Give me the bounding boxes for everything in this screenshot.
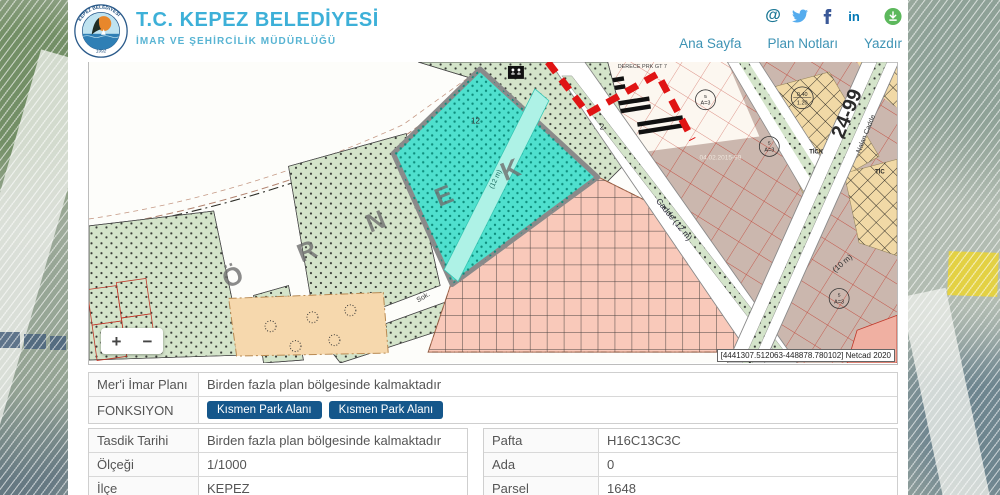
linkedin-icon[interactable]: in [845,7,863,25]
page-title: T.C. KEPEZ BELEDİYESİ [136,9,379,32]
nav-home[interactable]: Ana Sayfa [679,36,741,51]
header: KEPEZ BELEDİYESİ 1992 T.C. KEPEZ BELEDİY… [68,0,908,62]
main-nav: Ana Sayfa Plan Notları Yazdır [679,36,902,51]
svg-text:TİCK: TİCK [809,148,824,155]
svg-text:5: 5 [704,94,707,100]
parcel-detail-table-right: Pafta H16C13C3C Ada 0 Parsel 1648 [483,428,898,495]
svg-text:A=3: A=3 [764,147,774,153]
title-block: T.C. KEPEZ BELEDİYESİ İMAR VE ŞEHİRCİLİK… [136,9,379,47]
table-row: Mer'i İmar Planı Birden fazla plan bölge… [89,373,897,397]
row-value: Birden fazla plan bölgesinde kalmaktadır [199,429,467,452]
background-building [50,336,66,350]
map-zoom-control: + − [101,328,163,354]
page-subtitle: İMAR VE ŞEHİRCİLİK MÜDÜRLÜĞÜ [136,36,379,47]
content-panel: KEPEZ BELEDİYESİ 1992 T.C. KEPEZ BELEDİY… [68,0,908,495]
playground-icon [508,66,524,79]
table-row: Ölçeği 1/1000 [89,453,467,477]
svg-text:12: 12 [471,117,480,126]
zoom-out-button[interactable]: − [137,333,159,350]
svg-text:5: 5 [768,140,771,146]
row-label: FONKSIYON [89,397,199,423]
municipality-logo[interactable]: KEPEZ BELEDİYESİ 1992 [73,3,129,59]
row-label: İlçe [89,477,199,495]
row-value: 1648 [599,477,897,495]
recreation-area [229,292,389,356]
row-label: Mer'i İmar Planı [89,373,199,396]
row-label: Ölçeği [89,453,199,476]
svg-text:DERECE PRK GT 7: DERECE PRK GT 7 [618,64,667,70]
svg-text:A=3: A=3 [701,101,711,107]
background-building [0,332,20,348]
nav-print[interactable]: Yazdır [864,36,902,51]
table-row: Ada 0 [484,453,897,477]
row-label: Pafta [484,429,599,452]
table-row: İlçe KEPEZ [89,477,467,495]
background-yellow-block [947,251,999,297]
table-row: Parsel 1648 [484,477,897,495]
background-building [24,334,46,349]
svg-text:TİC: TİC [875,168,885,175]
svg-text:2: 2 [600,123,605,132]
social-icons: @ in [764,7,902,25]
plan-detail-table-left: Tasdik Tarihi Birden fazla plan bölgesin… [88,428,468,495]
row-value: KEPEZ [199,477,467,495]
function-badge-button[interactable]: Kısmen Park Alanı [207,401,322,419]
table-row: Pafta H16C13C3C [484,429,897,453]
svg-text:A=3: A=3 [834,299,844,305]
email-icon[interactable]: @ [764,7,782,25]
logo-year: 1992 [96,48,107,53]
row-value: H16C13C3C [599,429,897,452]
svg-text:1.20: 1.20 [797,101,808,107]
zoom-in-button[interactable]: + [106,333,128,350]
row-label: Tasdik Tarihi [89,429,199,452]
row-label: Parsel [484,477,599,495]
facebook-icon[interactable] [818,7,836,25]
background-photo-road [901,288,994,495]
svg-text:04.02.2015-99: 04.02.2015-99 [699,154,741,161]
nav-plan-notes[interactable]: Plan Notları [767,36,838,51]
row-value: 1/1000 [199,453,467,476]
table-row: Tasdik Tarihi Birden fazla plan bölgesin… [89,429,467,453]
map-attribution: [4441307.512063-448878.780102] Netcad 20… [717,349,895,362]
map-canvas[interactable]: 5 A=3 5 A=3 0.40 1.20 5 A=3 Ö R N E [89,62,897,363]
twitter-icon[interactable] [791,7,809,25]
svg-text:5: 5 [838,292,841,298]
function-badge-button[interactable]: Kısmen Park Alanı [329,401,444,419]
download-icon[interactable] [884,7,902,25]
row-label: Ada [484,453,599,476]
plan-info-table: Mer'i İmar Planı Birden fazla plan bölge… [88,372,898,424]
row-value: Kısmen Park Alanı Kısmen Park Alanı [199,397,897,423]
row-value: Birden fazla plan bölgesinde kalmaktadır [199,373,897,396]
table-row: FONKSIYON Kısmen Park Alanı Kısmen Park … [89,397,897,423]
row-value: 0 [599,453,897,476]
zoning-map[interactable]: 5 A=3 5 A=3 0.40 1.20 5 A=3 Ö R N E [88,62,898,365]
svg-text:0.40: 0.40 [797,92,808,98]
